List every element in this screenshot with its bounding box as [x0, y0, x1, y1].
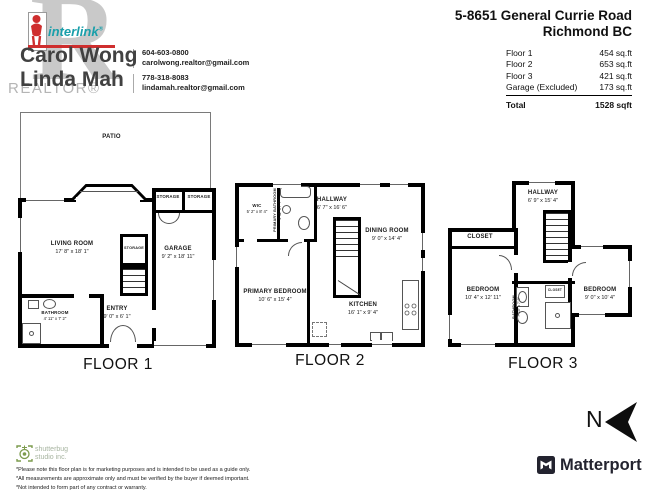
island-dashed-box	[312, 322, 327, 337]
stair-line	[338, 280, 360, 295]
toilet-fixture	[298, 216, 310, 230]
door-opening	[152, 310, 156, 328]
address-line-2: Richmond BC	[455, 24, 632, 40]
wall	[100, 294, 104, 348]
bay-window-glass	[80, 191, 138, 192]
window	[445, 315, 453, 339]
area-row-garage: Garage (Excluded) 173 sq.ft	[506, 82, 632, 93]
wall	[235, 239, 280, 242]
window	[232, 247, 240, 267]
room-dims: 4' 11" x 7' 2"	[24, 316, 86, 321]
room-name: HALLWAY	[515, 190, 571, 198]
room-label-closet: CLOSET	[451, 234, 509, 242]
floor-plan-sheet: R REALTOR® interlink® Carol Wong Linda M…	[0, 0, 659, 500]
property-address: 5-8651 General Currie Road Richmond BC	[455, 8, 632, 40]
agent-name-1: Carol Wong	[20, 44, 137, 68]
window	[372, 340, 392, 348]
room-label-primary-bedroom: PRIMARY BEDROOM 10' 6" x 15' 4"	[237, 289, 313, 304]
room-dims: 17' 8" x 18' 1"	[24, 249, 120, 256]
floor-3-label: FLOOR 3	[443, 355, 643, 373]
room-dims: 6' 7" x 16' 6"	[307, 205, 357, 212]
room-name: BEDROOM	[570, 287, 630, 295]
room-label-storage-left: STORAGE	[154, 194, 182, 200]
room-name: ENTRY	[90, 306, 144, 314]
area-label: Garage (Excluded)	[506, 82, 577, 93]
window	[26, 196, 64, 204]
agent-email-2: lindamah.realtor@gmail.com	[142, 83, 245, 93]
right-bedroom-block	[568, 245, 632, 317]
room-name: GARAGE	[146, 246, 210, 254]
room-dims: 9' 0" x 14' 4"	[357, 236, 417, 243]
room-label-bathroom: BATHROOM 4' 11" x 7' 2"	[24, 310, 86, 321]
disclaimer-text: *Please note this floor plan is for mark…	[16, 466, 250, 493]
room-name: CLOSET	[545, 288, 565, 292]
floor-2-plan: PRIMARY BATHROOM 4' 11" x 7' 7" WIC 5' 2…	[232, 170, 428, 370]
north-arrow-icon	[605, 402, 637, 442]
window	[418, 258, 426, 271]
door-opening	[512, 255, 520, 273]
area-label: Floor 2	[506, 59, 532, 70]
window	[625, 261, 633, 287]
room-label-primary-bathroom: PRIMARY BATHROOM 4' 11" x 7' 7"	[273, 188, 295, 232]
wall	[314, 183, 317, 242]
room-dims: 16' 1" x 9' 4"	[335, 310, 391, 317]
floor-2-label: FLOOR 2	[232, 352, 428, 370]
room-label-bathroom: BATHROOM 7' 10" x 7' 0"	[512, 285, 528, 329]
agent-email-1: carolwong.realtor@gmail.com	[142, 58, 249, 68]
area-value: 653 sq.ft	[599, 59, 632, 70]
stove-icon	[403, 302, 418, 317]
room-label-kitchen: KITCHEN 16' 1" x 9' 4"	[335, 302, 391, 317]
room-name: PATIO	[12, 134, 211, 142]
total-value: 1528 sqft	[595, 100, 632, 110]
room-name: DINING ROOM	[357, 228, 417, 236]
interlink-wordmark: interlink®	[48, 24, 103, 39]
room-label-storage-right: STORAGE	[184, 194, 214, 200]
contact-block-1: 604-603-0800 carolwong.realtor@gmail.com	[142, 48, 249, 67]
toilet-fixture	[43, 299, 56, 309]
wall	[448, 246, 518, 249]
room-label-storage-mid: STORAGE	[120, 246, 148, 251]
agent-phone-1: 604-603-0800	[142, 48, 249, 58]
area-row-floor1: Floor 1 454 sq.ft	[506, 48, 632, 59]
shower-drain	[555, 313, 560, 318]
room-label-bedroom-left: BEDROOM 10' 4" x 12' 11"	[451, 287, 515, 302]
room-dims: 5' 2" x 8' 4"	[238, 209, 276, 214]
room-dims: 9' 0" x 6' 1"	[90, 314, 144, 321]
wall	[18, 294, 104, 298]
room-label-bedroom-right: BEDROOM 9' 0" x 10' 4"	[570, 287, 630, 302]
window	[273, 180, 301, 188]
disclaimer-line-3: *Not intended to form part of any contra…	[16, 484, 250, 493]
room-label-hallway: HALLWAY 6' 9" x 15' 4"	[515, 190, 571, 205]
disclaimer-line-1: *Please note this floor plan is for mark…	[16, 466, 250, 475]
stair-treads	[336, 220, 358, 258]
divider-line	[133, 74, 134, 93]
room-label-living-room: LIVING ROOM 17' 8" x 18' 1"	[24, 241, 120, 256]
room-name: STORAGE	[184, 194, 214, 200]
studio-line-1: shutterbug	[35, 446, 68, 454]
room-dims: 10' 4" x 12' 11"	[451, 295, 515, 302]
room-name: HALLWAY	[307, 197, 357, 205]
room-label-dining-room: DINING ROOM 9' 0" x 14' 4"	[357, 228, 417, 243]
window	[461, 340, 495, 348]
shutterbug-studio-wordmark: shutterbug studio inc.	[35, 446, 68, 461]
area-value: 421 sq.ft	[599, 71, 632, 82]
garage-door-window	[154, 341, 206, 349]
door-opening	[74, 294, 89, 298]
stairs	[543, 210, 571, 263]
area-row-floor2: Floor 2 653 sq.ft	[506, 59, 632, 70]
shutterbug-camera-icon	[16, 445, 33, 462]
area-table: Floor 1 454 sq.ft Floor 2 653 sq.ft Floo…	[506, 48, 632, 110]
shower-drain	[29, 331, 34, 336]
wall	[182, 188, 185, 213]
room-label-wic: WIC 5' 2" x 8' 4"	[238, 203, 276, 214]
area-row-total: Total 1528 sqft	[506, 95, 632, 110]
window	[16, 218, 24, 252]
address-line-1: 5-8651 General Currie Road	[455, 8, 632, 24]
door-opening	[244, 239, 257, 242]
area-value: 173 sq.ft	[599, 82, 632, 93]
room-dims: 9' 2" x 18' 11"	[146, 254, 210, 261]
disclaimer-line-2: *All measurements are approximate only a…	[16, 475, 250, 484]
area-value: 454 sq.ft	[599, 48, 632, 59]
bay-opening	[76, 197, 140, 203]
area-label: Floor 1	[506, 48, 532, 59]
room-label-patio: PATIO	[12, 134, 211, 142]
room-name: BEDROOM	[451, 287, 515, 295]
north-label: N	[586, 406, 603, 433]
window	[418, 233, 426, 250]
floor-1-plan: PATIO STORAGE STORAGE LIVING ROOM 17' 8"…	[12, 110, 224, 378]
matterport-icon	[537, 456, 555, 474]
wall	[512, 281, 575, 284]
floor-3-plan: HALLWAY 6' 9" x 15' 4" CLOSET BEDROOM 10…	[443, 167, 659, 373]
room-label-closet-small: CLOSET	[545, 288, 565, 292]
room-name: PRIMARY BEDROOM	[237, 289, 313, 297]
room-label-entry: ENTRY 9' 0" x 6' 1"	[90, 306, 144, 321]
area-row-floor3: Floor 3 421 sq.ft	[506, 71, 632, 82]
window	[529, 178, 555, 186]
room-dims: 4' 11" x 7' 7"	[278, 188, 283, 232]
room-label-hallway: HALLWAY 6' 7" x 16' 6"	[307, 197, 357, 212]
area-label: Floor 3	[506, 71, 532, 82]
interlink-word: interlink	[48, 24, 99, 39]
window	[209, 260, 217, 300]
room-name: KITCHEN	[335, 302, 391, 310]
contact-block-2: 778-318-8083 lindamah.realtor@gmail.com	[142, 73, 245, 92]
room-dims: 7' 10" x 7' 0"	[517, 285, 522, 329]
room-name: CLOSET	[451, 234, 509, 242]
window	[579, 310, 605, 318]
studio-line-2: studio inc.	[35, 454, 68, 462]
window	[390, 180, 408, 188]
window	[329, 340, 341, 348]
room-dims: 6' 9" x 15' 4"	[515, 198, 571, 205]
door-opening	[109, 342, 137, 348]
window	[252, 340, 286, 348]
interlink-person-icon	[29, 13, 44, 48]
window	[360, 180, 380, 188]
floor-1-label: FLOOR 1	[12, 356, 224, 374]
room-name: STORAGE	[154, 194, 182, 200]
window	[581, 242, 603, 250]
interlink-reg-mark: ®	[99, 27, 103, 33]
room-dims: 10' 6" x 15' 4"	[237, 297, 313, 304]
room-dims: 9' 0" x 10' 4"	[570, 295, 630, 302]
agent-name-2: Linda Mah	[20, 68, 124, 92]
room-name: LIVING ROOM	[24, 241, 120, 249]
sink-fixture	[28, 300, 39, 309]
total-label: Total	[506, 100, 526, 110]
room-label-garage: GARAGE 9' 2" x 18' 11"	[146, 246, 210, 261]
stairs	[120, 266, 148, 296]
agent-phone-2: 778-318-8083	[142, 73, 245, 83]
room-name: STORAGE	[120, 246, 148, 251]
matterport-wordmark: Matterport	[560, 456, 642, 475]
